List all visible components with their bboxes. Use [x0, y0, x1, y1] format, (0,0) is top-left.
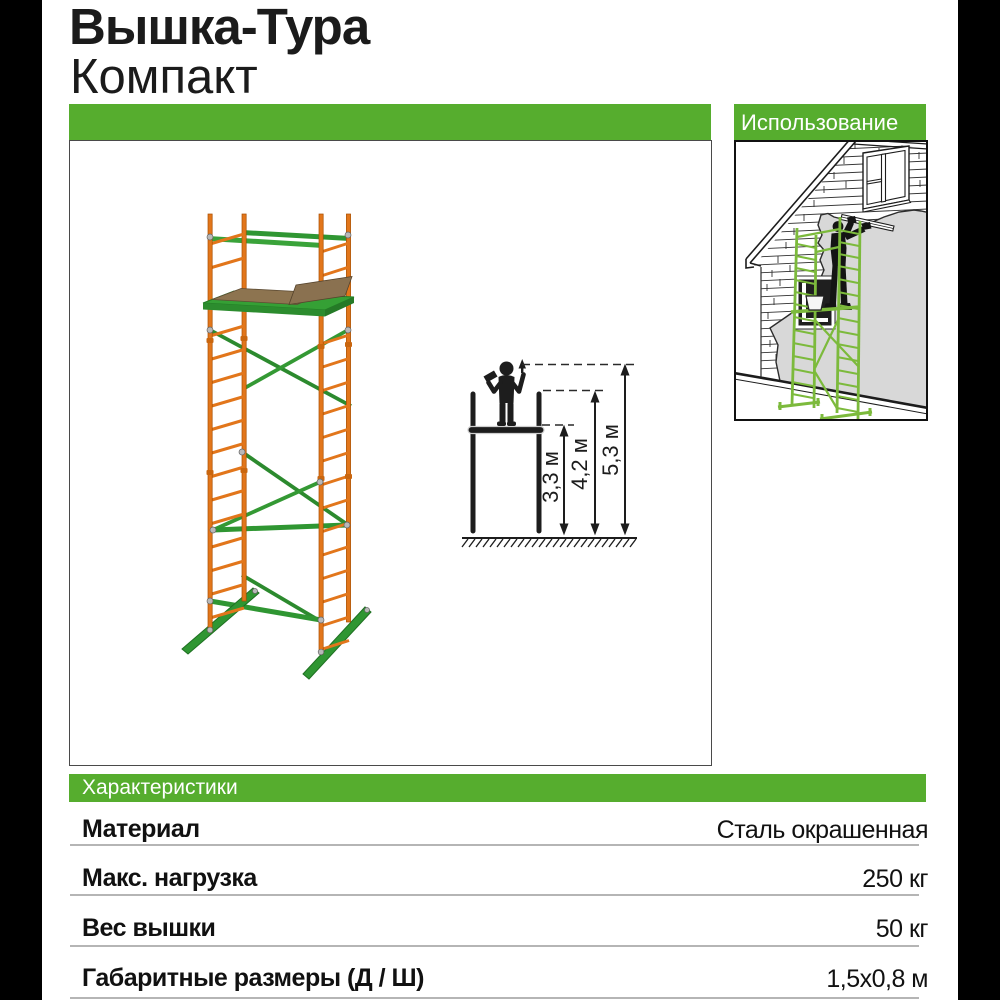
svg-text:5,3 м: 5,3 м [598, 424, 623, 476]
svg-text:3,3 м: 3,3 м [538, 451, 563, 503]
svg-text:4,2 м: 4,2 м [567, 438, 592, 490]
